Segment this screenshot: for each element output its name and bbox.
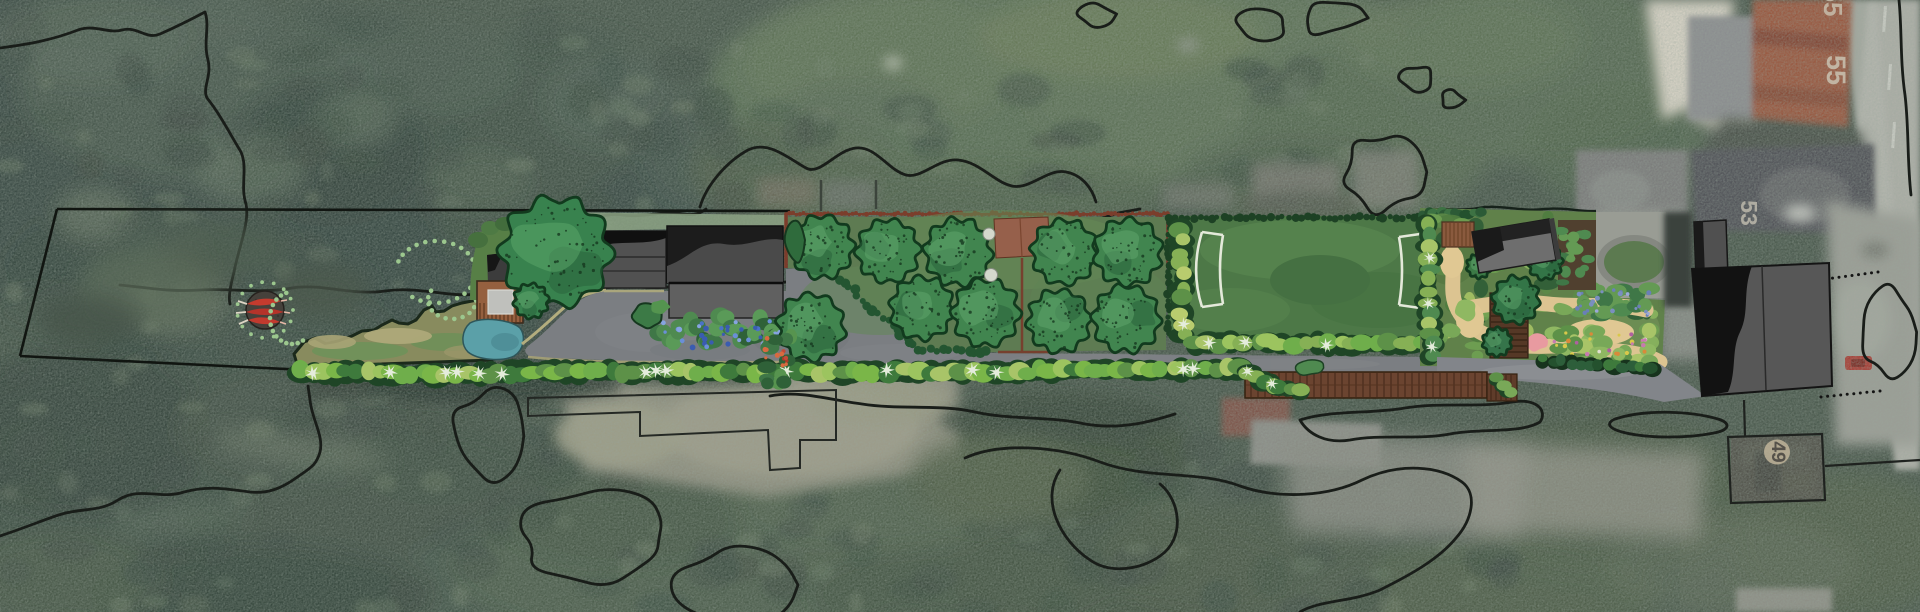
svg-text:53: 53 — [1736, 200, 1762, 226]
svg-text:55: 55 — [1818, 0, 1848, 16]
svg-text:49: 49 — [1767, 441, 1788, 462]
svg-text:55: 55 — [1821, 55, 1851, 85]
